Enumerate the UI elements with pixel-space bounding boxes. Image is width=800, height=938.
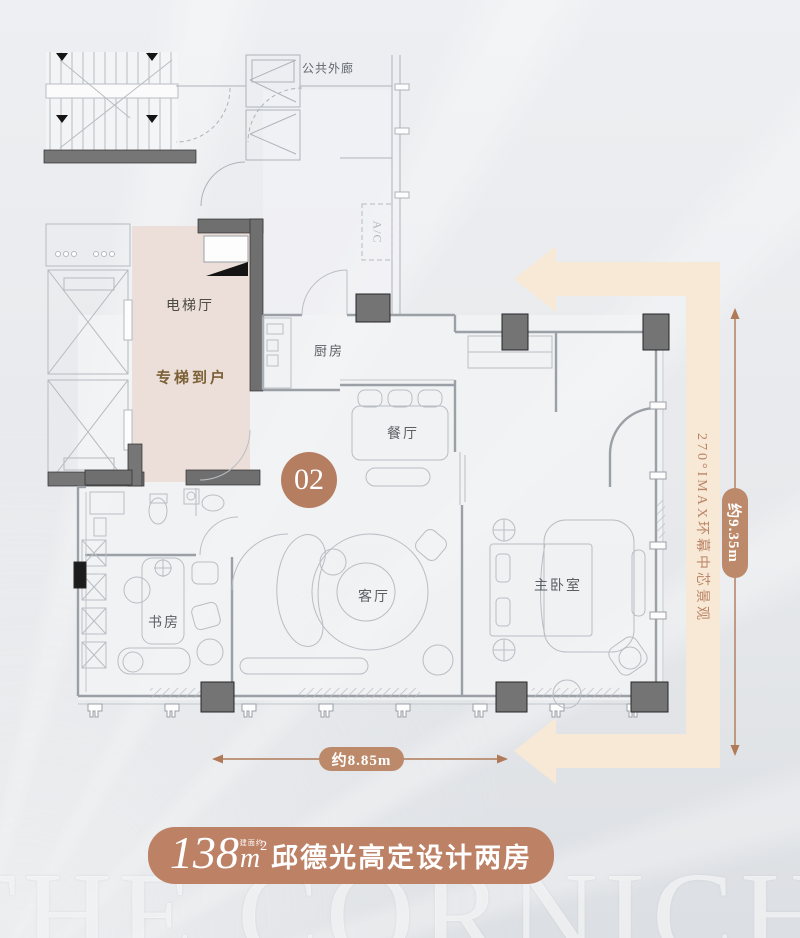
dimension-bottom-badge: 约8.85m: [319, 747, 404, 771]
dining-room-label: 餐厅: [387, 423, 419, 443]
curtain-wall-clips: [88, 704, 641, 717]
ac-label: A/C: [370, 220, 385, 243]
master-bedroom-label: 主卧室: [534, 575, 582, 595]
elevator-hall-label: 电梯厅: [166, 295, 214, 315]
banner-headline: 邱德光高定设计两房: [271, 836, 532, 875]
dimension-right-badge: 约9.35m: [722, 488, 748, 578]
unit-number-badge: 02: [281, 452, 337, 508]
view-feature-note: 270°IMAX环幕中芯景观: [692, 377, 714, 679]
floor-plan-drawing: [0, 0, 800, 938]
area-value: 138: [170, 830, 239, 876]
area-superscript: 2: [260, 840, 267, 854]
area-banner: 138 建面约 m2 邱德光高定设计两房: [148, 827, 554, 884]
area-unit: m2: [240, 847, 267, 871]
kitchen-label: 厨房: [314, 341, 344, 360]
living-room-label: 客厅: [358, 586, 390, 606]
study-label: 书房: [148, 612, 180, 632]
area-unit-stack: 建面约 m2: [240, 840, 267, 871]
private-elevator-label: 专梯到户: [156, 367, 228, 388]
elevator-hall-area: [132, 226, 250, 482]
floor-plan-page: 公共外廊 电梯厅 专梯到户 厨房 A/C 餐厅 客厅 主卧室 书房 02 270…: [0, 0, 800, 938]
public-corridor-label: 公共外廊: [302, 60, 354, 77]
